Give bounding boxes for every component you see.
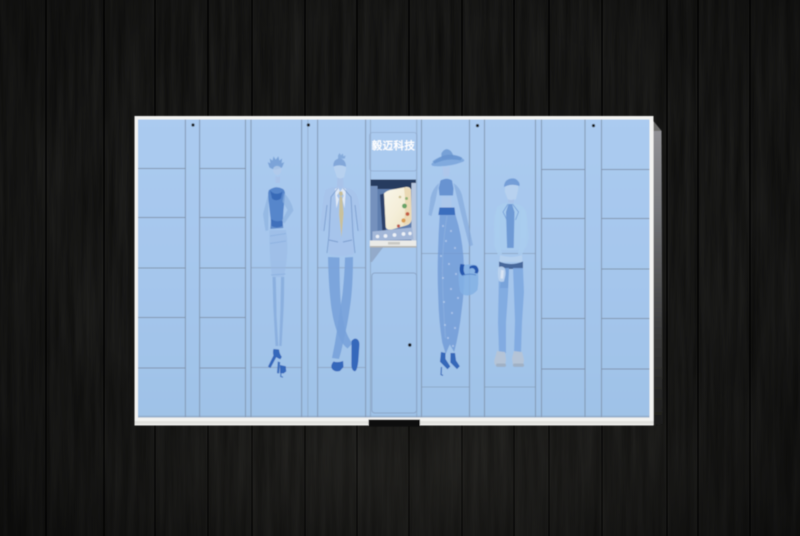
svg-text:毅迈科技: 毅迈科技 (371, 139, 416, 152)
